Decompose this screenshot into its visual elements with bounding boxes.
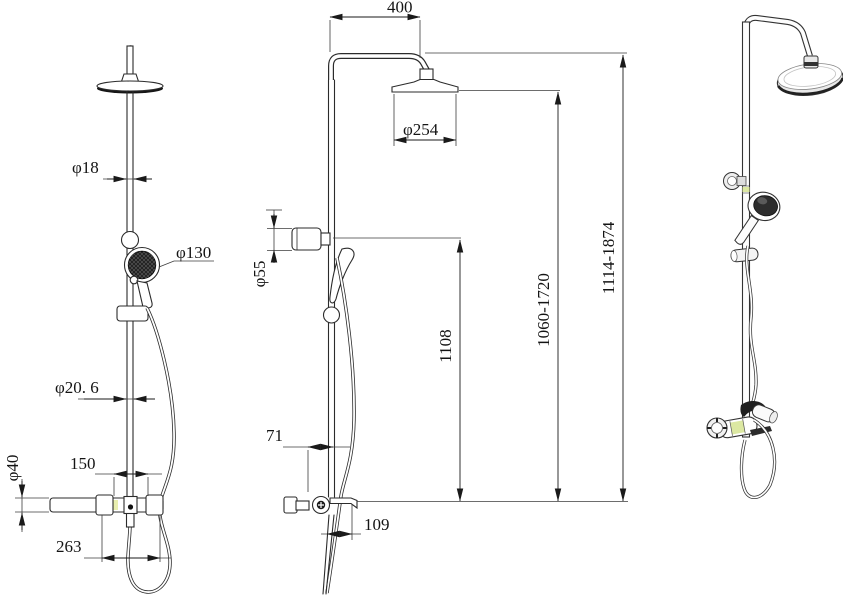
dim-phi254: φ254 [394,94,456,146]
head-connector-side [420,69,433,80]
dim-109: 109 [321,504,390,540]
holder-clamp-3d [730,248,758,263]
front-view [50,46,174,592]
dim-71-label: 71 [266,426,283,445]
dim-150-label: 150 [70,454,96,473]
dim-phi18: φ18 [72,158,152,179]
accent-band-3d [743,187,750,192]
dim-phi20-6-label: φ20. 6 [55,378,99,397]
riser-pipe [127,91,133,498]
holder-bracket [117,306,148,321]
technical-drawing-canvas: φ18 φ130 φ20. 6 150 φ40 [0,0,843,600]
dim-phi254-label: φ254 [403,120,439,139]
dim-1114-1874-label: 1114-1874 [599,221,618,294]
dim-phi18-label: φ18 [72,158,99,177]
perspective-view [707,18,843,498]
head-nut-band [804,62,818,66]
dim-1108: 1108 [436,240,460,501]
dim-400-label: 400 [387,0,413,17]
dim-400: 400 [330,0,420,58]
dim-phi130: φ130 [159,243,214,267]
arm-3d [746,18,810,56]
shower-hose [128,308,174,592]
mixer-outlet [127,512,135,527]
dim-phi130-label: φ130 [176,243,211,262]
shelf [330,498,357,508]
dim-150: 150 [70,454,162,496]
dim-263-label: 263 [56,537,82,556]
diverter-valve [284,497,357,514]
rain-head [97,81,163,91]
dim-263: 263 [56,515,171,562]
dim-phi40-label: φ40 [3,455,22,482]
top-pipe-stub [127,46,133,74]
bracket-neck [321,233,330,245]
wall-bracket-cylinder [292,228,321,250]
hand-shower-mesh [128,251,156,279]
ball-joint [122,232,139,249]
shower-arm [331,56,428,80]
dim-phi40: φ40 [3,455,49,532]
dim-1108-label: 1108 [436,329,455,362]
ball-joint-side [324,307,340,323]
hand-shower-button [130,276,138,284]
hand-shower-handle [137,281,152,308]
hand-shower-3d [734,188,783,252]
dim-1114-1874: 1114-1874 [599,55,623,501]
dim-phi55: φ55 [250,210,292,287]
shower-drawing: φ18 φ130 φ20. 6 150 φ40 [0,0,843,600]
center-dot [128,504,133,509]
dim-109-label: 109 [364,515,390,534]
dim-1060-1720: 1060-1720 [534,92,558,501]
left-valve-knob [96,495,113,515]
dim-phi20-6: φ20. 6 [55,378,155,399]
dim-71: 71 [266,426,350,492]
dim-phi55-label: φ55 [250,261,269,288]
rain-head-profile [392,80,458,93]
right-valve-knob [146,495,163,515]
dim-1060-1720-label: 1060-1720 [534,273,553,347]
